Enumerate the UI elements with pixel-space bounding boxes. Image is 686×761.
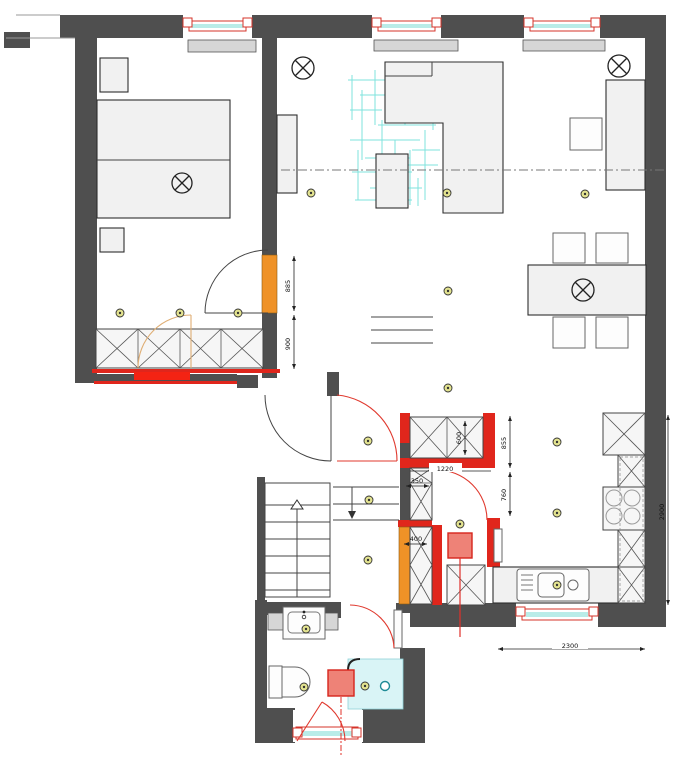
window-jamb-right [589,607,598,616]
hall-red-door-swing [337,395,397,461]
faucet-dot [303,611,306,614]
window-jamb-right [591,18,600,27]
bedroom-door-panel [262,255,277,313]
closet-body [410,417,483,458]
kitchen-bottom-wall-right [598,603,666,627]
wardrobe [96,315,263,368]
left-wall [75,38,97,374]
stair-left-wall [257,477,265,600]
bedroom [96,58,277,368]
toilet-tank [269,666,282,698]
right-wall [645,38,666,627]
closet-large [410,417,483,458]
spotlight-icon [456,520,464,528]
bathroom-bottom-wall-right [362,708,425,743]
spotlight-icon [176,309,184,317]
tv-shelf [277,115,297,193]
chair [596,233,628,263]
hall-door-swing [265,395,331,461]
spotlight-icon [443,189,451,197]
bedroom-door [205,250,277,313]
vanity-side-right [325,613,338,630]
staircase [265,483,330,597]
dining-table [528,265,646,315]
spotlight-icon [365,496,373,504]
floor-plan-drawing: 885 900 600 1220 350 855 760 400 2300 29… [0,0,686,757]
bedroom-divider-wall-upper [262,38,277,255]
chair [553,233,585,263]
bedroom-bottom-wall-step [237,375,258,388]
window-jamb-left [372,18,381,27]
hallway-doors [265,395,397,461]
dim-label-1220: 1220 [437,465,454,473]
dim-label-350: 350 [411,477,423,485]
chair [553,317,585,348]
spotlight-icon [553,438,561,446]
dim-label-885: 885 [284,280,292,292]
window-glass [533,24,591,28]
kitchen [493,413,645,603]
toilet-bowl [282,667,310,697]
spotlight-icon [361,682,369,690]
closet-door-orange [399,527,410,604]
window-jamb-right [432,18,441,27]
floor-step-lines [371,317,433,343]
window-jamb-right [243,18,252,27]
appliance-red-box [448,533,472,558]
steps-down-arrow-icon [348,511,356,519]
dim-label-2300: 2300 [562,642,579,650]
spotlight-icon [364,556,372,564]
bathroom-door [350,605,402,648]
spotlight-icon [116,309,124,317]
bathroom-bottom-wall-left [255,708,295,743]
side-table [570,118,602,150]
vanity-side-left [268,613,283,630]
spotlight-icon [234,309,242,317]
coffee-table [376,154,408,208]
dining-set [528,233,646,348]
spotlight-icon [444,287,452,295]
bathroom-door-swing [350,605,394,648]
top-wall-segment-1 [60,15,183,38]
living-window-2 [523,16,605,51]
window-jamb-left [524,18,533,27]
radiator [188,40,256,52]
kitchen-bottom-wall-left [410,603,516,627]
dim-label-600: 600 [455,432,463,444]
kitchen-window [516,604,598,626]
red-wall-bedroom-bottom-line [94,381,237,384]
spotlight-icon [553,509,561,517]
tall-cabinet [606,80,645,190]
radiator [523,40,605,51]
door-swing-arc [205,250,268,313]
bed [97,100,230,218]
red-wall-lower-band [398,520,432,527]
kitchen-door-swing [437,470,487,520]
window-glass [381,24,432,28]
ceiling-lamp-icon-living-right [608,55,630,77]
top-wall-segment-2 [252,15,372,38]
top-wall-segment-3 [441,15,524,38]
top-wall-segment-4 [600,15,666,38]
shower-floor [348,659,403,709]
floor-plan-page: 885 900 600 1220 350 855 760 400 2300 29… [0,0,686,757]
bathroom-door-leaf [394,610,402,648]
living-room [277,62,664,348]
spotlight-icon [300,683,308,691]
appliance-red-box-bathroom [328,670,354,696]
spotlight-icon [364,437,372,445]
radiator [374,40,458,51]
hallway-wall-stub [327,372,339,396]
closet-left-wall-gray2 [400,470,410,520]
dim-label-400: 400 [410,535,422,543]
closet-kitchen [447,565,485,605]
window-jamb-left [516,607,525,616]
spotlight-icon [581,190,589,198]
spotlight-icon [444,384,452,392]
red-wall-closet-left [400,413,410,443]
bedroom-divider-wall-lower [262,313,277,378]
red-wall-closet-right [483,413,495,462]
spotlight-icon [302,625,310,633]
neighbor-wall-stub [4,32,30,48]
dim-label-855: 855 [500,437,508,449]
kitchen-door-leaf [494,529,502,562]
nightstand-top [100,58,128,92]
spotlight-icon [553,581,561,589]
window-jamb-right [352,728,361,737]
red-wall-lower-right [432,525,442,605]
dim-label-2900: 2900 [658,504,666,521]
window-glass [192,24,243,28]
wardrobe-body [96,329,263,368]
chair [596,317,628,348]
red-wall-bedroom-block [134,372,190,380]
bathroom-right-wall [400,648,425,710]
hall-steps [333,487,399,520]
dim-label-760: 760 [500,489,508,501]
ceiling-lamp-icon-living-left [292,57,314,79]
toilet [269,666,310,698]
bathroom-entry-window [293,710,363,742]
closet-small [410,468,432,520]
dim-label-900: 900 [284,338,292,350]
window-glass [526,612,588,617]
window-jamb-left [183,18,192,27]
spotlight-icon [307,189,315,197]
bedroom-window [183,16,256,52]
shower-drain-icon [381,682,390,691]
nightstand-bottom [100,228,124,252]
